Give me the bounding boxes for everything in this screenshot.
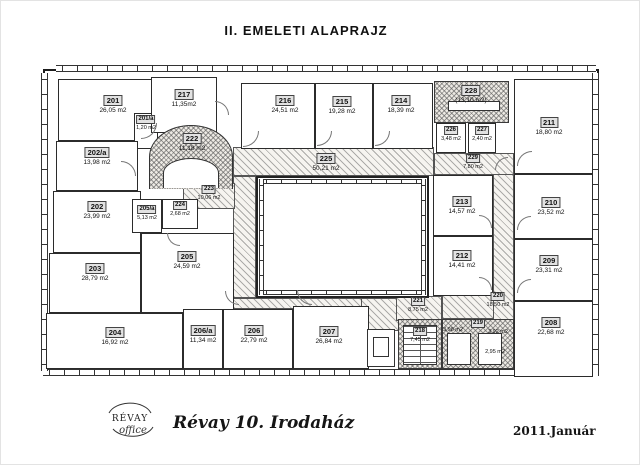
room-number: 205 (178, 251, 197, 262)
room-number: 209 (540, 255, 559, 266)
room-area: 10,06 m2 (198, 195, 221, 202)
building-name: Révay 10. Irodaház (173, 413, 354, 433)
room-label-205a: 205/a 5,13 m2 (137, 205, 157, 222)
room-number: 217 (175, 89, 194, 100)
room-label-218: 218 7,45 m2 (410, 327, 430, 344)
room-area: 14,41 m2 (448, 262, 475, 269)
room-number: 201 (104, 95, 123, 106)
room-number: 222 (183, 133, 202, 144)
round-stair-arch (163, 158, 219, 188)
room-area: 26,05 m2 (99, 107, 126, 114)
room-label-211: 211 18,80 m2 (535, 117, 562, 136)
elevator-car (373, 337, 389, 357)
room-area: 11,34 m2 (190, 337, 217, 344)
courtyard-band-top (260, 179, 425, 184)
room-number: 221 (411, 297, 425, 306)
wc-area-label: 3,92 m2 (488, 329, 508, 335)
floor-plan-page: II. EMELETI ALAPRAJZ (0, 0, 640, 465)
room-number: 223 (202, 185, 216, 194)
room-area: 24,59 m2 (173, 263, 200, 270)
room-number: 227 (475, 126, 489, 135)
room-area: 1,20 m2 (136, 125, 156, 132)
plan-date: 2011.Január (513, 424, 596, 438)
room-area: 3,48 m2 (441, 136, 461, 143)
room-area: 8,75 m2 (408, 307, 428, 314)
room-number: 214 (392, 95, 411, 106)
room-number: 207 (320, 326, 339, 337)
room-area: 18,50 m2 (487, 302, 510, 309)
room-area: 23,99 m2 (83, 213, 110, 220)
room-number: 213 (453, 196, 472, 207)
courtyard (256, 176, 429, 298)
room-number: 203 (86, 263, 105, 274)
room-label-206a: 206/a 11,34 m2 (190, 325, 217, 344)
room-area: 14,57 m2 (448, 208, 475, 215)
room-label-217: 217 11,35m2 (172, 89, 197, 108)
room-label-210: 210 23,52 m2 (537, 197, 564, 216)
room-label-215: 215 19,28 m2 (328, 96, 355, 115)
room-label-226: 226 3,48 m2 (441, 126, 461, 143)
logo-text-revay: RÉVAY (112, 412, 148, 424)
room-number: 205/a (137, 205, 156, 214)
room-label-204: 204 16,92 m2 (101, 327, 128, 346)
courtyard-band-left (259, 179, 264, 295)
room-203 (49, 253, 141, 313)
room-area: 18,39 m2 (387, 107, 414, 114)
room-label-227: 227 2,40 m2 (472, 126, 492, 143)
room-number: 220 (491, 292, 505, 301)
room-area: (13,10 m2) (455, 97, 486, 104)
room-number: 202/a (85, 147, 110, 158)
room-number: 206/a (191, 325, 216, 336)
logo-text-office: office (119, 425, 147, 436)
window-band-right (592, 73, 599, 376)
room-label-222: 222 11,18 m2 (179, 133, 206, 152)
room-label-201a: 201/a 1,20 m2 (136, 115, 156, 132)
room-label-213: 213 14,57 m2 (448, 196, 475, 215)
room-number: 224 (173, 201, 187, 210)
room-label-212: 212 14,41 m2 (448, 250, 475, 269)
room-label-223: 223 10,06 m2 (198, 185, 221, 202)
room-number: 228 (462, 85, 481, 96)
room-label-225: 225 50,21 m2 (312, 153, 339, 172)
room-area: 19,28 m2 (328, 108, 355, 115)
room-number: 201/a (136, 115, 155, 124)
room-label-216: 216 24,51 m2 (271, 95, 298, 114)
window-band-top (56, 65, 596, 72)
room-number: 218 (413, 327, 427, 336)
room-205 (141, 233, 234, 313)
room-number: 215 (333, 96, 352, 107)
room-area: 23,31 m2 (535, 267, 562, 274)
room-label-221: 221 8,75 m2 (408, 297, 428, 314)
room-number: 216 (276, 95, 295, 106)
room-label-202: 202 23,99 m2 (83, 201, 110, 220)
room-label-205: 205 24,59 m2 (173, 251, 200, 270)
room-area: 7,45 m2 (410, 337, 430, 344)
room-number: 229 (466, 154, 480, 163)
room-208 (514, 301, 593, 377)
room-number: 206 (245, 325, 264, 336)
room-area: 23,52 m2 (537, 209, 564, 216)
room-number: 212 (453, 250, 472, 261)
room-label-202a: 202/a 13,98 m2 (83, 147, 110, 166)
room-area: 22,79 m2 (240, 337, 267, 344)
room-label-208: 208 22,68 m2 (537, 317, 564, 336)
wc-area-label: 3,98 m2 (443, 327, 463, 333)
room-area: 18,80 m2 (535, 129, 562, 136)
room-label-209: 209 23,31 m2 (535, 255, 562, 274)
room-number: 219 (471, 319, 485, 328)
courtyard-band-right (421, 179, 426, 295)
room-area: 11,35m2 (172, 101, 197, 108)
room-area: 26,84 m2 (315, 338, 342, 345)
wc-stall-1 (447, 333, 471, 365)
room-label-207: 207 26,84 m2 (315, 326, 342, 345)
room-area: 22,68 m2 (537, 329, 564, 336)
room-label-214: 214 18,39 m2 (387, 95, 414, 114)
corridor-225-left (233, 176, 256, 298)
room-area: 13,98 m2 (83, 159, 110, 166)
room-area: 24,51 m2 (271, 107, 298, 114)
room-label-228: 228 (13,10 m2) (455, 85, 486, 104)
room-area: 5,13 m2 (137, 215, 157, 222)
room-label-206: 206 22,79 m2 (240, 325, 267, 344)
room-area: 16,92 m2 (101, 339, 128, 346)
revay-office-logo: RÉVAY office (99, 397, 165, 445)
wc-area-label: 2,95 m2 (485, 349, 505, 355)
room-label-201: 201 26,05 m2 (99, 95, 126, 114)
room-number: 202 (88, 201, 107, 212)
page-title: II. EMELETI ALAPRAJZ (1, 23, 611, 38)
room-area: 2,40 m2 (472, 136, 492, 143)
room-number: 210 (542, 197, 561, 208)
room-label-219: 219 (471, 319, 485, 328)
room-number: 226 (444, 126, 458, 135)
courtyard-band-bottom (260, 290, 425, 295)
room-number: 211 (540, 117, 558, 128)
room-number: 204 (106, 327, 125, 338)
room-area: 2,68 m2 (170, 211, 190, 218)
room-number: 208 (542, 317, 561, 328)
room-label-220: 220 18,50 m2 (487, 292, 510, 309)
room-area: 50,21 m2 (312, 165, 339, 172)
room-area: 7,80 m2 (463, 164, 483, 171)
room-area: 28,79 m2 (81, 275, 108, 282)
room-label-203: 203 28,79 m2 (81, 263, 108, 282)
room-label-224: 224 2,68 m2 (170, 201, 190, 218)
room-number: 225 (317, 153, 336, 164)
room-label-229: 229 7,80 m2 (463, 154, 483, 171)
room-area: 11,18 m2 (179, 145, 206, 152)
